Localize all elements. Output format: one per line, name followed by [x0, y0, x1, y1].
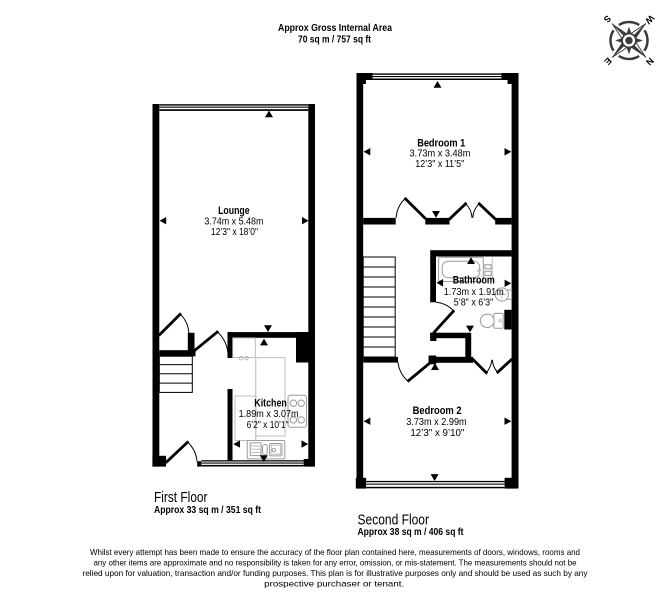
svg-text:Bedroom 1: Bedroom 1: [417, 137, 465, 149]
svg-text:12’3" x 11’5": 12’3" x 11’5": [415, 159, 464, 170]
svg-text:Bathroom: Bathroom: [453, 275, 495, 287]
svg-text:3.73m x 3.48m: 3.73m x 3.48m: [410, 149, 471, 160]
svg-text:1.89m x 3.07m: 1.89m x 3.07m: [239, 409, 299, 420]
svg-text:1.73m x 1.91m: 1.73m x 1.91m: [444, 287, 504, 298]
svg-text:Bedroom 2: Bedroom 2: [413, 405, 462, 417]
svg-text:6’2" x 10’1": 6’2" x 10’1": [247, 420, 289, 431]
svg-text:Whilst every attempt has been: Whilst every attempt has been made to en…: [90, 547, 580, 557]
svg-text:relied upon for valuation, tra: relied upon for valuation, transaction a…: [83, 568, 589, 578]
svg-text:Lounge: Lounge: [218, 205, 250, 217]
svg-text:Kitchen: Kitchen: [254, 398, 287, 410]
svg-text:Approx 33 sq m / 351 sq ft: Approx 33 sq m / 351 sq ft: [154, 505, 262, 516]
svg-text:prospective purchaser or tenan: prospective purchaser or tenant.: [264, 578, 404, 588]
svg-text:12’3" x 18’0": 12’3" x 18’0": [211, 227, 258, 238]
svg-text:Approx Gross Internal Area: Approx Gross Internal Area: [278, 22, 392, 34]
svg-text:5’8" x 6’3": 5’8" x 6’3": [454, 298, 494, 309]
svg-text:12’3" x 9’10": 12’3" x 9’10": [410, 428, 464, 439]
svg-text:any other items are approximat: any other items are approximate and no r…: [94, 558, 577, 568]
svg-text:First Floor: First Floor: [154, 489, 208, 506]
svg-text:Approx 38 sq m / 406 sq ft: Approx 38 sq m / 406 sq ft: [358, 527, 465, 538]
svg-text:Second Floor: Second Floor: [358, 511, 430, 528]
svg-text:70 sq m / 757 sq ft: 70 sq m / 757 sq ft: [298, 33, 371, 45]
svg-text:3.73m x 2.99m: 3.73m x 2.99m: [406, 417, 467, 428]
